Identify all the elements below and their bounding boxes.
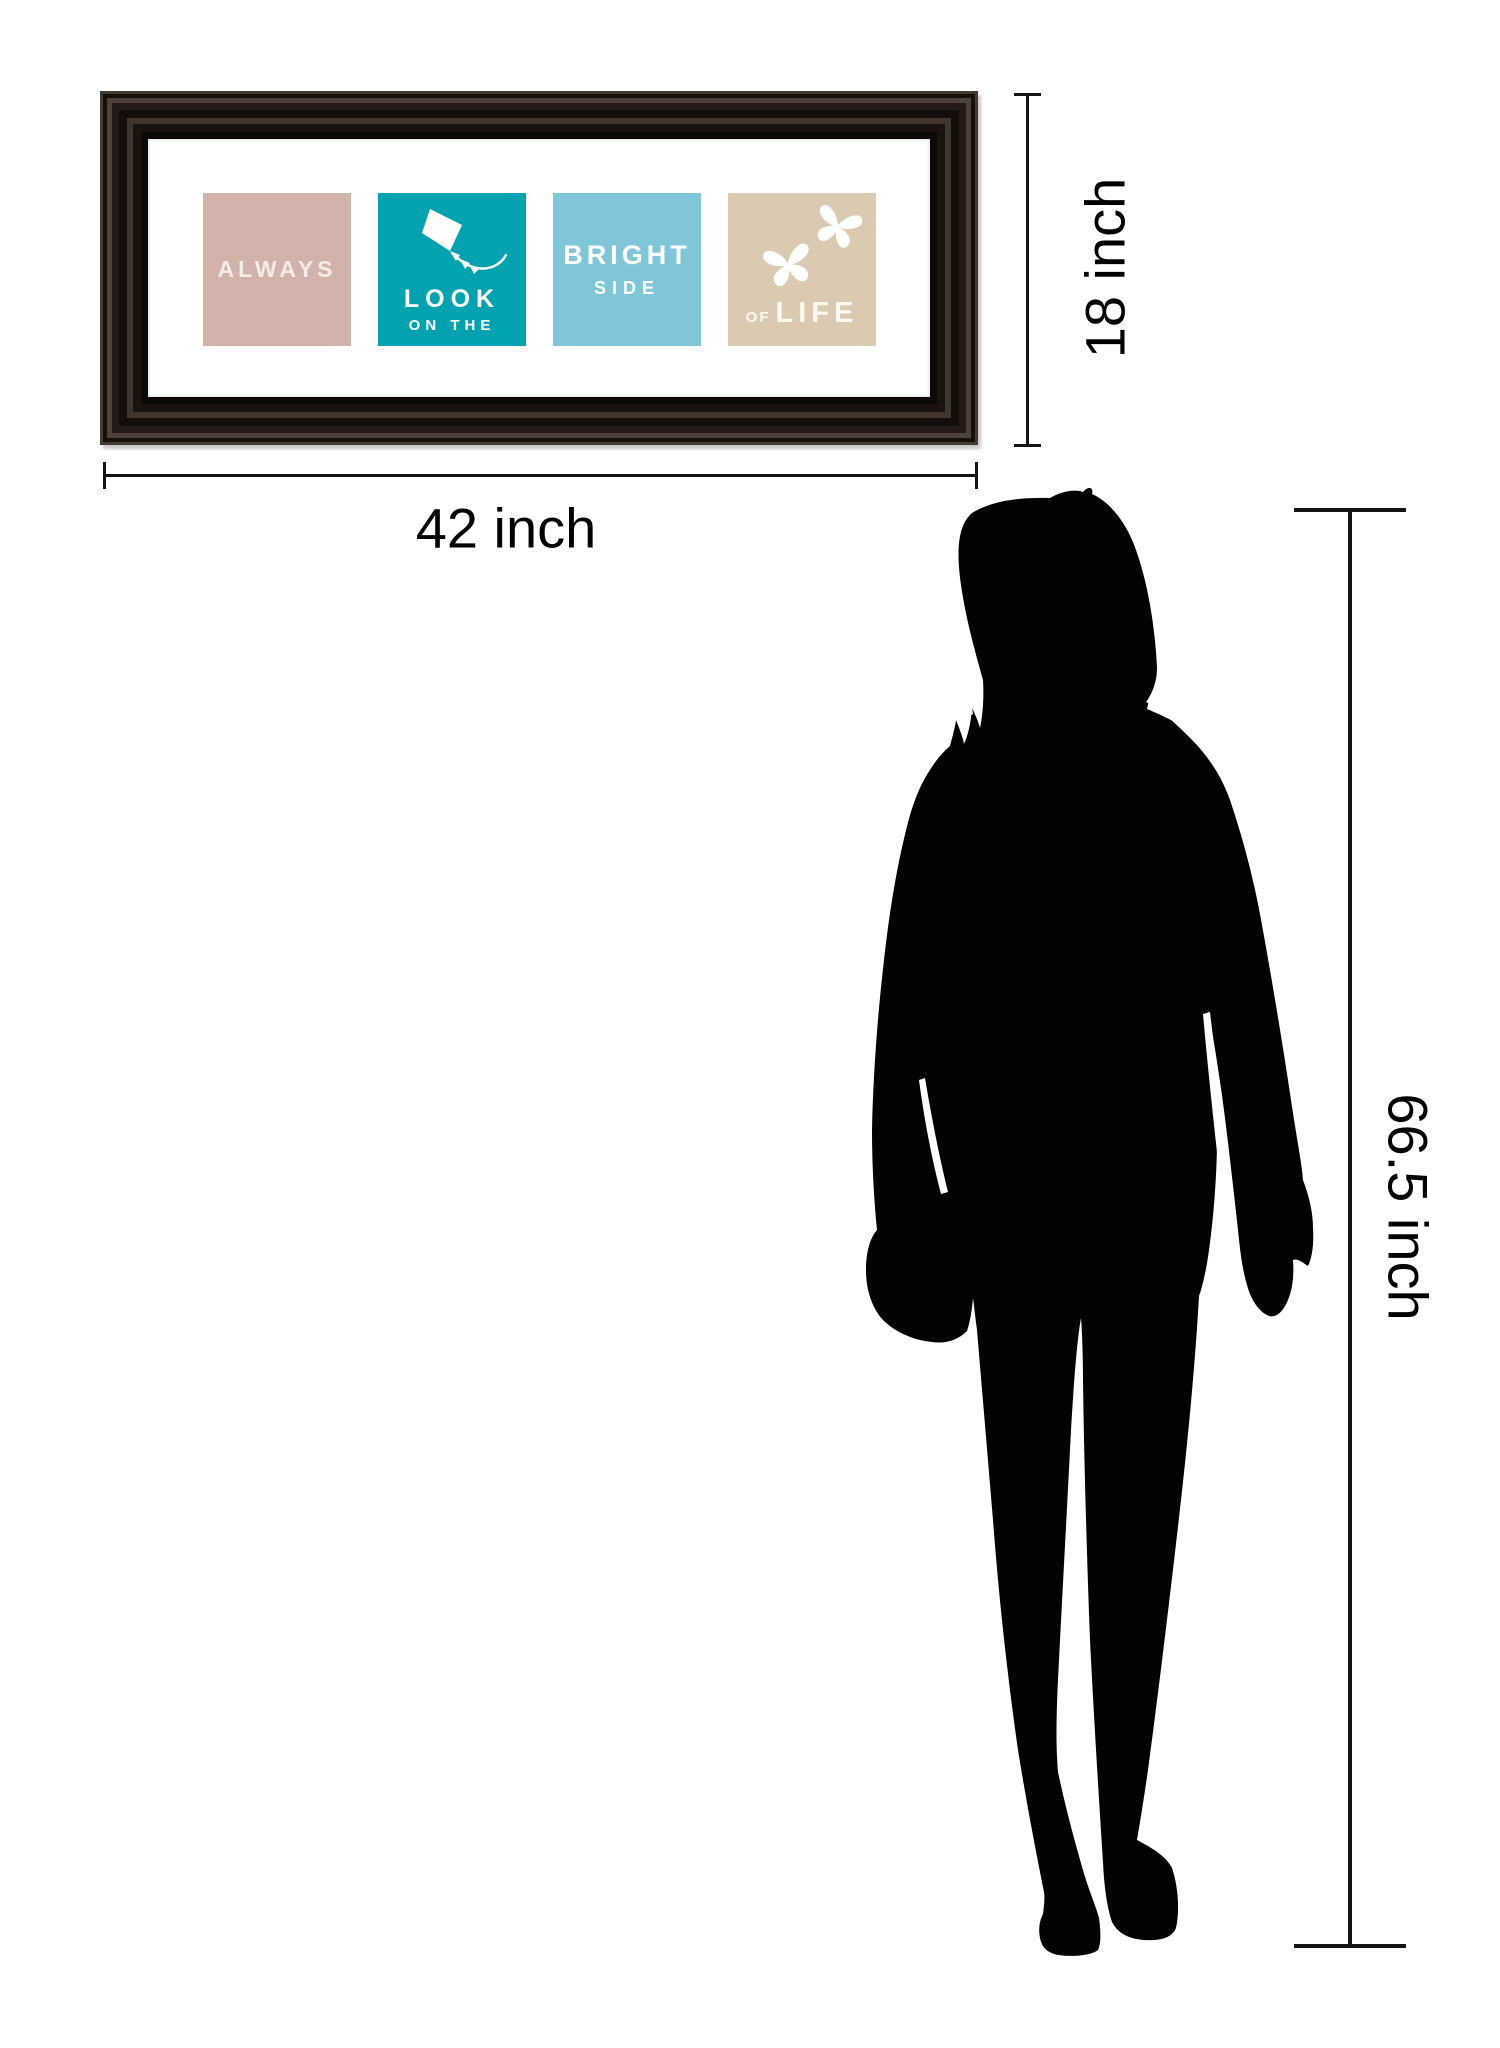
person-dimension-line (1348, 510, 1352, 1948)
person-dimension-label: 66.5 inch (1376, 1093, 1441, 1320)
woman-silhouette-body (866, 488, 1313, 1956)
panel-look-text: LOOK (404, 286, 500, 314)
panel-always-text: ALWAYS (217, 256, 336, 283)
hair-strand-gap (959, 630, 973, 716)
kite-icon (400, 205, 510, 275)
panel-life-text: LIFE (776, 297, 859, 330)
panel-look-on-the: LOOK ON THE (378, 193, 526, 346)
picture-frame: ALWAYS LOOK ON THE BRIGHT SIDE (100, 91, 978, 445)
height-dimension-cap-bottom (1014, 444, 1041, 447)
width-dimension-cap-left (103, 462, 106, 489)
panel-side-text: SIDE (594, 278, 660, 299)
art-panels: ALWAYS LOOK ON THE BRIGHT SIDE (203, 193, 876, 346)
panel-bright-text: BRIGHT (563, 240, 691, 271)
height-dimension-label: 18 inch (1073, 178, 1138, 359)
butterflies-icon (758, 199, 868, 291)
panel-onthe-text: ON THE (409, 317, 496, 334)
frame-mat: ALWAYS LOOK ON THE BRIGHT SIDE (148, 139, 930, 397)
person-dimension-cap-top (1294, 508, 1406, 512)
width-dimension-label: 42 inch (416, 496, 597, 561)
panel-always: ALWAYS (203, 193, 351, 346)
person-dimension-cap-bottom (1294, 1944, 1406, 1948)
woman-silhouette (860, 485, 1320, 1965)
panel-of-life: OF LIFE (728, 193, 876, 346)
height-dimension-cap-top (1014, 93, 1041, 96)
width-dimension-line (103, 474, 978, 477)
height-dimension-line (1026, 93, 1029, 446)
panel-bright-side: BRIGHT SIDE (553, 193, 701, 346)
panel-of-text: OF (746, 309, 771, 326)
